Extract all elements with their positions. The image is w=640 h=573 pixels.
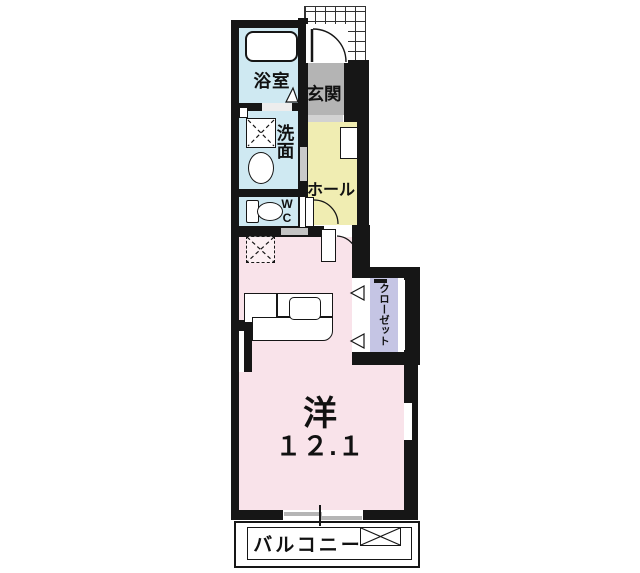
hall-label: ホール [305,176,357,200]
room-size-label: １２.１ [260,426,380,463]
closet-door-track [363,283,370,348]
wall-right-lower [404,365,418,520]
pipe-space [239,107,248,118]
wall-top [231,20,308,28]
bathtub [245,31,298,62]
entrance-label: 玄関 [304,81,344,106]
closet-back-gap [398,280,405,350]
window-right [404,403,412,440]
room-threshold [281,228,308,235]
wall-closet-right [404,267,420,365]
closet-label: クローゼット [377,283,392,351]
balcony-label: バルコニー [252,530,364,557]
balcony-washer-space [360,527,401,546]
bathroom-label: 浴室 [243,68,301,93]
wc-label: WC [281,197,293,225]
entrance-step [305,115,343,122]
wall-gap [239,331,244,372]
wall-hall-right [357,122,369,268]
wall-kitchen-pillar [244,331,252,372]
hall-storage-box [340,127,358,159]
appliance-space [246,236,275,263]
floor-plan: 浴室 洗面 WC 玄関 ホール クローゼット 洋 １２.１ バルコニー [0,0,640,573]
kitchen-counter-front [252,317,333,341]
washer-pan [246,118,276,148]
window-sash-left [284,512,322,516]
wc-door-leaf [305,197,314,227]
washroom-label: 洗面 [273,124,298,180]
wall-left-outer [231,20,239,520]
wash-basin [248,152,274,184]
wall-wc-room [231,226,324,237]
room-door-leaf [321,229,336,262]
kitchen-sink [289,297,321,320]
wall-entrance-right [344,60,369,122]
bathroom-sliding-door [262,103,292,111]
window-sash-right [321,516,362,520]
wall-closet-bottom [352,352,420,365]
entrance-door-opening [306,24,348,63]
wall-closet-top [352,267,412,278]
wall-washroom-wc [239,189,299,197]
